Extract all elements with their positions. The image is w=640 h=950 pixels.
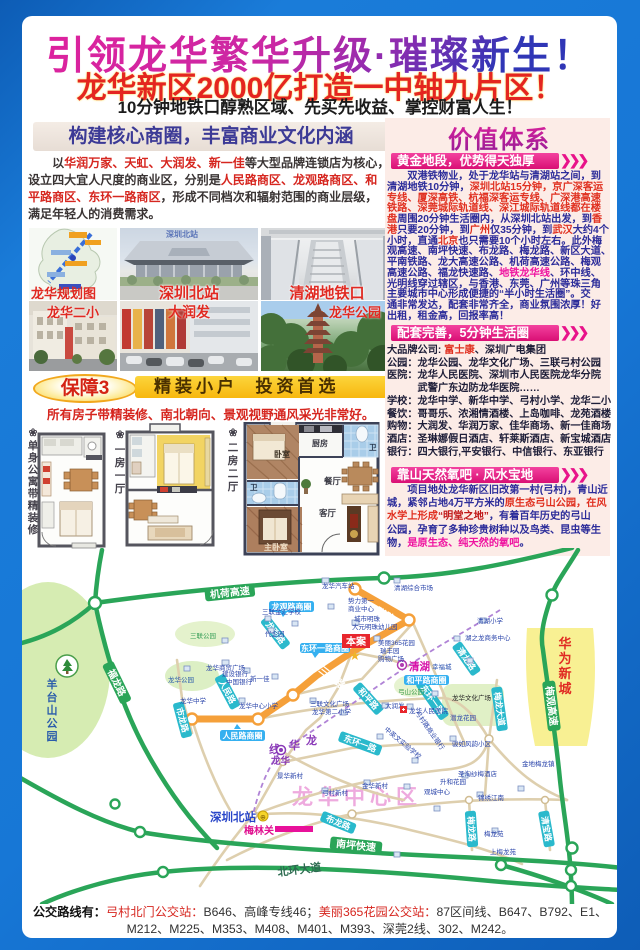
svg-text:龙华中心小学: 龙华中心小学 (239, 701, 279, 710)
svg-text:景华新村: 景华新村 (277, 771, 304, 780)
svg-text:卫: 卫 (250, 483, 258, 492)
svg-text:大元明珠幼儿园: 大元明珠幼儿园 (352, 622, 398, 631)
svg-text:精: 精 (28, 499, 39, 512)
svg-text:餐厅: 餐厅 (323, 476, 342, 486)
svg-text:升和花园: 升和花园 (440, 777, 466, 786)
svg-text:清湖小学: 清湖小学 (477, 616, 504, 625)
svg-text:清湖综合市场: 清湖综合市场 (394, 583, 434, 592)
svg-text:龙华公园: 龙华公园 (168, 675, 194, 684)
svg-text:势力第一: 势力第一 (348, 596, 375, 605)
svg-text:弓山公园: 弓山公园 (398, 687, 424, 696)
svg-text:中国银行: 中国银行 (226, 677, 253, 686)
svg-text:寓: 寓 (28, 475, 39, 488)
svg-text:梅龙苑: 梅龙苑 (484, 829, 504, 838)
svg-text:建设银行: 建设银行 (222, 669, 249, 678)
svg-text:圣淘纱梅酒店: 圣淘纱梅酒店 (458, 769, 498, 778)
svg-text:龙华文化广场: 龙华文化广场 (452, 693, 492, 702)
svg-text:龙华人民医院: 龙华人民医院 (409, 706, 449, 715)
svg-text:潜龙花园: 潜龙花园 (450, 713, 476, 722)
svg-text:湖之龙商务中心: 湖之龙商务中心 (465, 633, 511, 642)
svg-text:金华新村: 金华新村 (362, 781, 389, 790)
svg-text:三联公园: 三联公园 (190, 631, 216, 640)
svg-text:单: 单 (28, 439, 39, 452)
svg-text:卧室: 卧室 (274, 449, 290, 459)
svg-text:购物广场: 购物广场 (378, 654, 405, 663)
svg-text:卫: 卫 (369, 443, 377, 452)
svg-text:三联金汇学校: 三联金汇学校 (262, 607, 302, 616)
svg-text:龙华中学: 龙华中学 (180, 696, 207, 705)
svg-text:瑞丰园: 瑞丰园 (380, 646, 400, 655)
svg-text:一: 一 (115, 444, 126, 456)
svg-text:❀: ❀ (116, 429, 125, 441)
svg-text:中英文实验学校: 中英文实验学校 (383, 725, 424, 761)
svg-text:弓村路商业银行: 弓村路商业银行 (413, 709, 447, 752)
svg-text:厨房: 厨房 (312, 438, 328, 448)
svg-text:三联文化广场: 三联文化广场 (310, 699, 350, 708)
svg-text:美丽365花园: 美丽365花园 (378, 638, 415, 647)
svg-text:城市明珠: 城市明珠 (354, 614, 381, 623)
svg-text:深圳北站: 深圳北站 (166, 229, 198, 239)
svg-text:一: 一 (115, 470, 126, 482)
svg-text:带: 带 (28, 487, 39, 500)
svg-text:厅: 厅 (115, 483, 126, 495)
svg-text:骏如风韵小区: 骏如风韵小区 (452, 739, 492, 748)
svg-text:代企园: 代企园 (265, 629, 285, 638)
svg-text:上梅龙苑: 上梅龙苑 (490, 847, 517, 856)
svg-text:新一佳: 新一佳 (250, 674, 270, 683)
svg-text:商业中心: 商业中心 (348, 604, 375, 613)
svg-text:房: 房 (115, 456, 126, 469)
svg-text:装: 装 (27, 511, 39, 524)
svg-text:房: 房 (228, 454, 239, 467)
svg-text:身: 身 (28, 451, 39, 464)
svg-text:二: 二 (228, 468, 239, 480)
svg-text:❀: ❀ (229, 427, 238, 439)
svg-text:锦绣江南: 锦绣江南 (478, 793, 505, 802)
svg-text:客厅: 客厅 (318, 508, 337, 518)
svg-text:厅: 厅 (228, 481, 239, 493)
svg-text:❀: ❀ (29, 427, 38, 439)
svg-text:弓村新村: 弓村新村 (322, 788, 349, 797)
svg-text:龙华第二小学: 龙华第二小学 (312, 707, 352, 716)
svg-text:观城中心: 观城中心 (424, 787, 451, 796)
svg-text:金地梅龙镇: 金地梅龙镇 (522, 759, 555, 768)
svg-text:龙华汽车站: 龙华汽车站 (322, 581, 355, 590)
svg-text:二: 二 (228, 442, 239, 454)
svg-text:公: 公 (28, 464, 39, 476)
svg-text:修: 修 (27, 523, 39, 536)
